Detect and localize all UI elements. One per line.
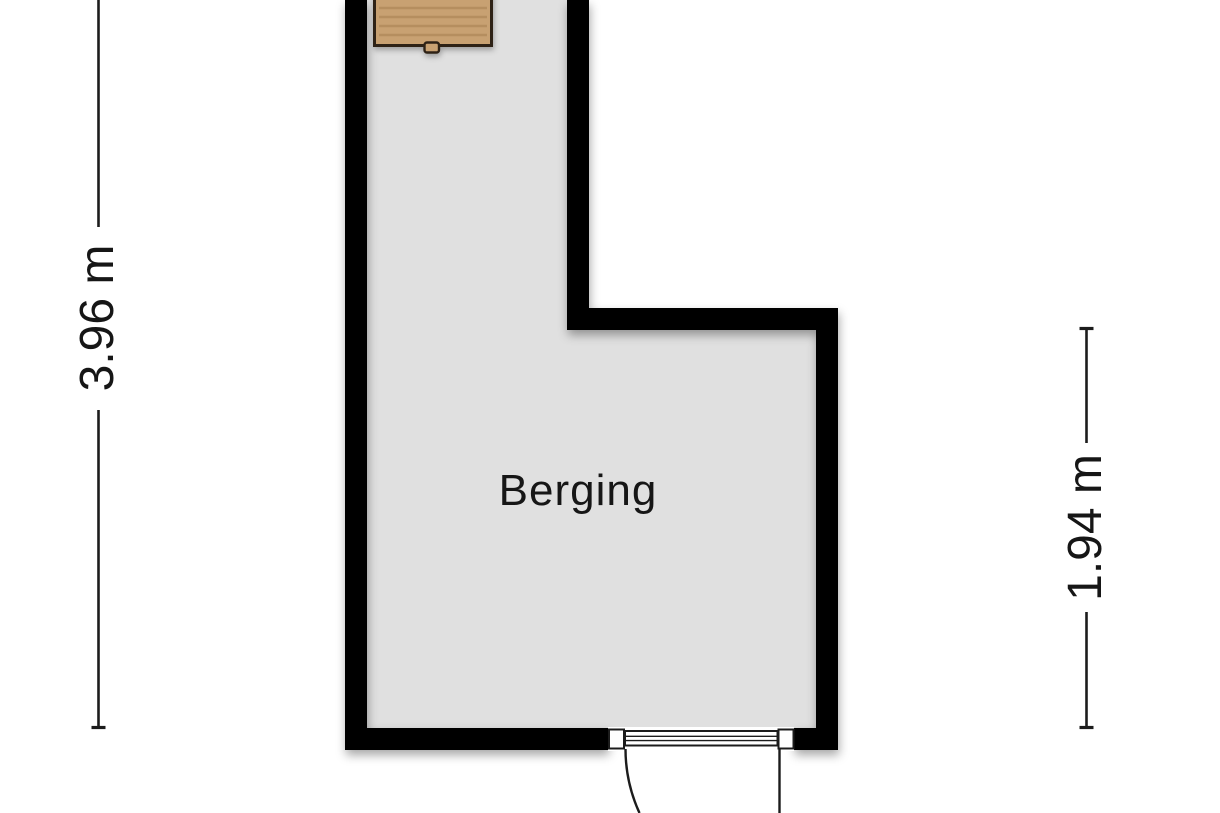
wall-bottom-left: [345, 728, 608, 750]
door-swing-arc: [626, 749, 640, 813]
floorplan-canvas: 3.96 m 1.94 m Berging: [0, 0, 1220, 813]
workbench-knob: [425, 43, 440, 53]
door-panel: [625, 731, 778, 746]
dimension-left-label: 3.96 m: [71, 245, 124, 392]
door: [608, 727, 794, 813]
wall-right: [816, 308, 838, 750]
dimension-left: 3.96 m: [71, 0, 124, 728]
door-post-right: [779, 730, 794, 749]
wall-upper-right: [567, 0, 589, 308]
dimension-right-label: 1.94 m: [1059, 454, 1112, 601]
workbench: [375, 0, 492, 53]
wall-bottom-right: [794, 728, 838, 750]
door-post-left: [609, 730, 624, 749]
floorplan-svg: 3.96 m 1.94 m Berging: [0, 0, 1220, 813]
wall-step: [567, 308, 838, 330]
wall-left: [345, 0, 367, 750]
room-label: Berging: [499, 466, 658, 515]
room-floor: [367, 0, 816, 728]
dimension-right: 1.94 m: [1059, 329, 1112, 728]
